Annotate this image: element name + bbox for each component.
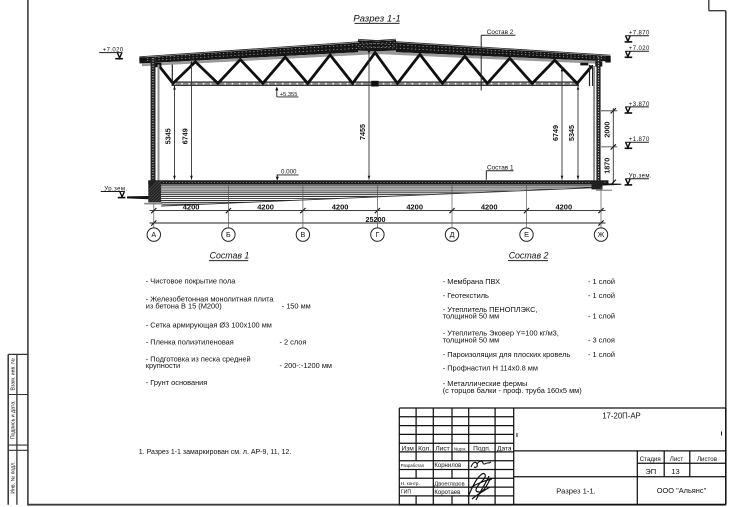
svg-text:1870: 1870 [602,158,611,174]
svg-text:ООО "Альянс": ООО "Альянс" [657,486,707,495]
svg-text:Подпись и дата.: Подпись и дата. [10,400,16,439]
svg-text:4200: 4200 [332,202,349,211]
svg-text:Кол.: Кол. [418,445,431,452]
svg-text:ЭП: ЭП [645,467,656,476]
svg-text:Н. контр.: Н. контр. [401,481,420,486]
svg-text:7455: 7455 [358,124,367,140]
svg-text:Коротаев: Коротаев [434,490,460,496]
svg-text:- Пленка полиэтиленовая: - Пленка полиэтиленовая [146,337,234,346]
svg-text:2000: 2000 [602,122,611,138]
svg-text:- Сетка армирующая Ø3 100х100: - Сетка армирующая Ø3 100х100 мм [146,321,272,330]
svg-text:6749: 6749 [551,125,560,141]
svg-text:Двоеглазов: Двоеглазов [434,481,464,487]
svg-text:- 2 слоя: - 2 слоя [280,337,307,346]
svg-text:Инв. № подл.: Инв. № подл. [10,461,16,493]
svg-text:Дата: Дата [497,445,512,452]
svg-text:- 3 слоя: - 3 слоя [588,335,615,344]
svg-text:- 200-:-1200 мм: - 200-:-1200 мм [280,361,332,370]
svg-text:5345: 5345 [164,128,173,144]
svg-text:А: А [151,230,156,239]
svg-text:- 1 слой: - 1 слой [588,291,615,300]
svg-text:- 1 слой: - 1 слой [588,277,615,286]
svg-text:ГИП: ГИП [401,490,412,496]
svg-text:- 1 слой: - 1 слой [588,312,615,321]
svg-text:Д: Д [450,230,455,239]
svg-text:4200: 4200 [555,202,572,211]
svg-text:Б: Б [226,230,231,239]
svg-text:13: 13 [671,467,679,476]
svg-text:- 1 слой: - 1 слой [588,350,615,359]
svg-text:из бетона В 15 (М200): из бетона В 15 (М200) [146,301,222,310]
svg-text:крупности: крупности [146,361,180,370]
svg-text:6749: 6749 [181,128,190,144]
svg-text:- 150 мм: - 150 мм [282,301,311,310]
svg-text:4200: 4200 [183,202,200,211]
svg-text:Изм: Изм [402,445,415,452]
svg-text:Ж: Ж [598,230,605,239]
svg-text:№док.: №док. [454,446,467,451]
svg-text:Лист: Лист [670,456,684,463]
svg-text:В: В [301,230,306,239]
svg-text:Корнилов: Корнилов [434,463,461,469]
svg-text:4200: 4200 [481,202,498,211]
svg-text:(с торцов балки - проф. труба: (с торцов балки - проф. труба 160х5 мм) [443,386,582,395]
svg-text:Взам. инв. №: Взам. инв. № [10,358,16,391]
svg-text:Лист: Лист [435,445,449,452]
svg-text:5345: 5345 [567,125,576,141]
svg-text:25200: 25200 [366,215,386,224]
svg-text:толщиной 50 мм: толщиной 50 мм [443,312,500,321]
svg-text:Листов: Листов [697,456,718,463]
svg-text:- Грунт основания: - Грунт основания [146,378,208,387]
svg-text:Состав 1: Состав 1 [210,251,250,261]
svg-text:Разрез 1-1: Разрез 1-1 [353,13,401,24]
svg-text:- Чистовое покрытие пола: - Чистовое покрытие пола [146,276,237,285]
svg-text:толщиной 50 мм: толщиной 50 мм [443,335,500,344]
svg-text:1. Разрез 1-1 замаркирован см.: 1. Разрез 1-1 замаркирован см. л. АР-9, … [139,449,291,456]
svg-text:- Геотекстиль: - Геотекстиль [443,291,489,300]
svg-text:- Профнастил Н 114х0.8 мм: - Профнастил Н 114х0.8 мм [443,363,538,372]
svg-text:Разработал: Разработал [401,463,425,468]
svg-text:4200: 4200 [257,202,274,211]
svg-text:17-20П-АР: 17-20П-АР [602,412,641,421]
svg-text:- Пароизоляция для плоских кро: - Пароизоляция для плоских кровель [443,350,571,359]
svg-text:4200: 4200 [406,202,423,211]
svg-text:Подп.: Подп. [473,445,491,452]
svg-text:Е: Е [524,230,529,239]
svg-text:Состав 2: Состав 2 [509,251,549,261]
svg-text:Стадия: Стадия [640,456,661,463]
svg-text:Разрез 1-1.: Разрез 1-1. [556,486,595,495]
svg-text:- Мембрана ПВХ: - Мембрана ПВХ [443,277,500,286]
svg-text:Г: Г [375,230,379,239]
